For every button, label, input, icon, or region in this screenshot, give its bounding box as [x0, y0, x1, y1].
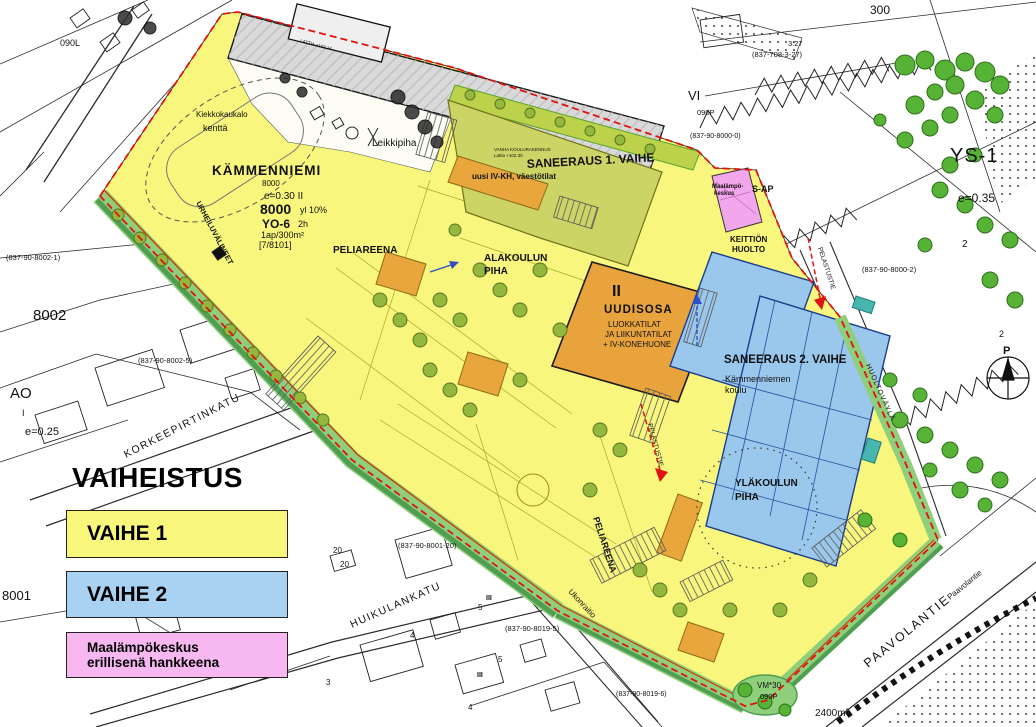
label-uudisosa-l1: LUOKKATILAT: [608, 320, 661, 329]
street-huikulankatu: HUIKULANKATU: [348, 580, 443, 631]
legend-phase2-label: VAIHE 2: [87, 583, 167, 607]
label-keittion: KEITTIÖN: [730, 235, 768, 244]
label-vanha2: Lattia +102.30: [494, 153, 523, 158]
legend-heatplant-swatch: Maalämpökeskus erillisenä hankkeena: [66, 632, 288, 678]
street-korkeepirtinkatu: KORKEEPIRTINKATU: [122, 391, 243, 460]
legend-title: VAIHEISTUS: [72, 462, 308, 494]
label-keittion-huolto: HUOLTO: [732, 245, 765, 254]
label-north-p: P: [1003, 345, 1010, 357]
legend-heatplant-line2: erillisenä hankkeena: [87, 655, 219, 670]
label-uudisosa-l2: JA LIIKUNTATILAT: [605, 330, 672, 339]
label-n20a: 20: [333, 546, 342, 555]
label-ylakoulun: YLÄKOULUN: [735, 476, 798, 489]
legend-phase1-label: VAIHE 1: [87, 522, 167, 546]
label-koulu2: koulu: [725, 385, 747, 395]
label-iiia: III: [486, 595, 492, 602]
label-300: 300: [870, 3, 890, 17]
label-peliareena: PELIAREENA: [333, 245, 397, 256]
label-2400m2: 2400m²: [815, 708, 850, 719]
label-kentta: kenttä: [203, 123, 228, 133]
street-paavolantie-small: Paavolantie: [946, 568, 985, 602]
label-090p-top: 090P: [697, 108, 715, 117]
label-ao: AO: [10, 385, 32, 402]
label-n4a: 4: [410, 631, 415, 640]
label-n5b: 5: [498, 655, 503, 664]
label-heat2: keskus: [714, 191, 735, 197]
label-ref-8000-0: (837-90-8000-0): [690, 133, 741, 140]
zoning-area: 8000: [262, 179, 280, 188]
label-e025: e=0.25: [25, 426, 59, 438]
label-8002: 8002: [33, 307, 66, 324]
label-8001: 8001: [2, 588, 31, 603]
legend-phase1-swatch: VAIHE 1: [66, 510, 288, 558]
legend-heatplant-label: Maalämpökeskus erillisenä hankkeena: [87, 640, 219, 670]
legend-heatplant-line1: Maalämpökeskus: [87, 640, 219, 655]
label-koulu1: Kämmenniemen: [725, 374, 791, 384]
label-alakoulun: ALAKOULUN: [484, 253, 547, 264]
label-uudisosa-l3: + IV-KONEHUONE: [603, 340, 671, 349]
label-n3: 3: [326, 678, 331, 687]
label-n2b: 2: [999, 329, 1004, 339]
label-e035: e=0.35: [958, 191, 995, 205]
zoning-name: KÄMMENNIEMI: [212, 163, 321, 178]
zoning-build-right: 8000: [260, 201, 291, 217]
label-090p-b: 090P: [760, 692, 778, 701]
zoning-build-right2: yl 10%: [300, 205, 327, 215]
legend-phase2-swatch: VAIHE 2: [66, 571, 288, 618]
zoning-ref: [7/8101]: [259, 240, 292, 250]
zoning-use2: 2h: [298, 219, 308, 229]
label-heat1: Maalämpö-: [712, 184, 743, 190]
label-ref-708-3-27: (837-708-3-27): [752, 50, 803, 59]
label-vanha1: VANHA KOULURAKENNUS: [494, 147, 551, 152]
label-3-27: 3:27: [788, 39, 803, 48]
label-n20b: 20: [340, 560, 349, 569]
label-pelastustie-2: PELASTUSTIE: [816, 246, 836, 291]
label-n2a: 2: [962, 239, 968, 250]
site-plan-map: 090L (837-90-8002-1) 8002 (837-90-8002-5…: [0, 0, 1036, 727]
label-saneeraus2: SANEERAUS 2. VAIHE: [724, 354, 847, 366]
label-ref-8002-5: (837-90-8002-5): [138, 356, 193, 365]
label-090l: 090L: [60, 38, 80, 48]
label-ao-floor: I: [22, 408, 25, 418]
label-n5a: 5: [478, 603, 483, 612]
label-ref-8019-5: (837-90-8019-5): [505, 624, 560, 633]
zoning-parking: 1ap/300m²: [261, 230, 304, 240]
label-iiib: III: [477, 672, 483, 679]
zoning-use: YO-6: [262, 217, 290, 231]
label-vm30: VM*30: [757, 681, 782, 690]
label-ref-8002-1: (837-90-8002-1): [6, 253, 61, 262]
label-ylakoulun-piha: PIHA: [735, 492, 759, 503]
label-ys1: YS-1: [950, 145, 998, 167]
label-vi: VI: [688, 88, 700, 103]
label-kiekkokaukalo: Kiekkokaukalo: [196, 110, 248, 119]
label-n4b: 4: [468, 703, 473, 712]
label-ref-8000-2: (837-90-8000-2): [862, 265, 917, 274]
phasing-legend: VAIHEISTUS VAIHE 1 VAIHE 2 Maalämpökesku…: [58, 458, 308, 494]
label-leikkipiha: Leikkipiha: [372, 138, 417, 149]
label-ivkh: uusi IV-KH, väestötilat: [472, 172, 556, 181]
label-ref-8001-20: (837-90-8001-20): [398, 541, 457, 550]
label-uudisosa-floors: II: [612, 283, 621, 300]
label-alakoulun-piha: PIHA: [484, 266, 508, 277]
north-arrow: [987, 357, 1029, 399]
label-sap: S-AP: [752, 184, 774, 194]
label-uudisosa: UUDISOSA: [604, 304, 673, 316]
label-ref-8019-6: (837-90-8019-6): [616, 691, 667, 698]
